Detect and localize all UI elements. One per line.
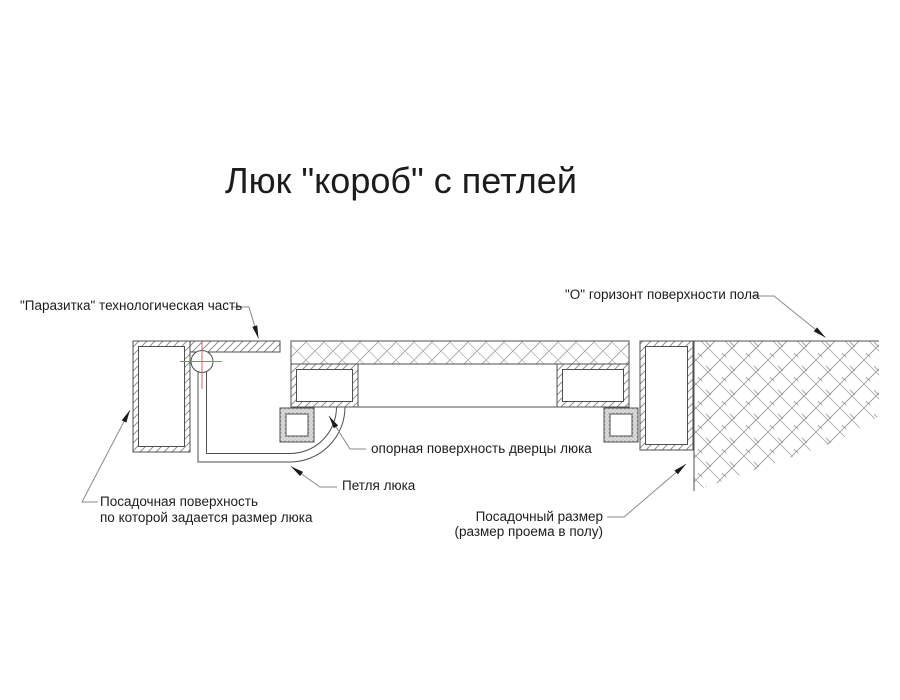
leader-seat-surface xyxy=(82,410,130,502)
label-hinge: Петля люка xyxy=(342,478,415,494)
support-block-right xyxy=(604,408,638,442)
leader-seat-size xyxy=(607,464,686,517)
label-seat-size-line2: (размер проема в полу) xyxy=(440,524,603,539)
door-top-filler xyxy=(291,341,629,364)
hatch-section-diagram xyxy=(0,0,900,700)
label-support-surface: опорная поверхность дверцы люка xyxy=(371,441,592,457)
label-seat-size-line1: Посадочный размер xyxy=(440,509,603,524)
leader-horizon xyxy=(752,296,826,338)
leader-hinge xyxy=(291,467,337,488)
frame-left-profile xyxy=(133,341,190,452)
technical-drawing-page: Люк "короб" с петлей xyxy=(0,0,900,700)
frame-right-profile xyxy=(640,341,693,450)
label-seat-surface-line2: по которой задается размер люка xyxy=(100,510,313,526)
support-block-left xyxy=(280,408,314,442)
label-seat-size: Посадочный размер (размер проема в полу) xyxy=(440,509,603,539)
floor-slab-section xyxy=(693,341,879,491)
label-parasitka: "Паразитка" технологическая часть xyxy=(20,298,242,314)
door-right-profile xyxy=(557,364,629,407)
hatch-door-assembly xyxy=(291,341,629,407)
label-seat-surface: Посадочная поверхность по которой задает… xyxy=(100,494,313,525)
label-seat-surface-line1: Посадочная поверхность xyxy=(100,494,313,510)
label-floor-horizon: "О" горизонт поверхности пола xyxy=(565,287,760,303)
door-left-profile xyxy=(291,364,358,407)
